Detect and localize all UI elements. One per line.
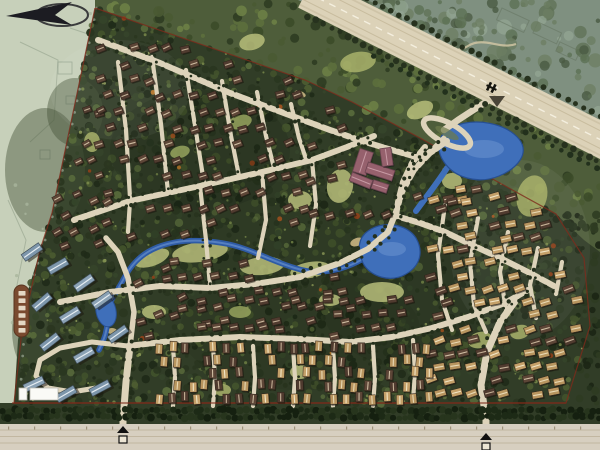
legend-box xyxy=(19,388,58,400)
master-plan-canvas xyxy=(0,0,600,450)
road-name-sign xyxy=(14,285,29,337)
master-plan-rendering xyxy=(0,0,600,450)
perimeter-road xyxy=(0,403,600,450)
